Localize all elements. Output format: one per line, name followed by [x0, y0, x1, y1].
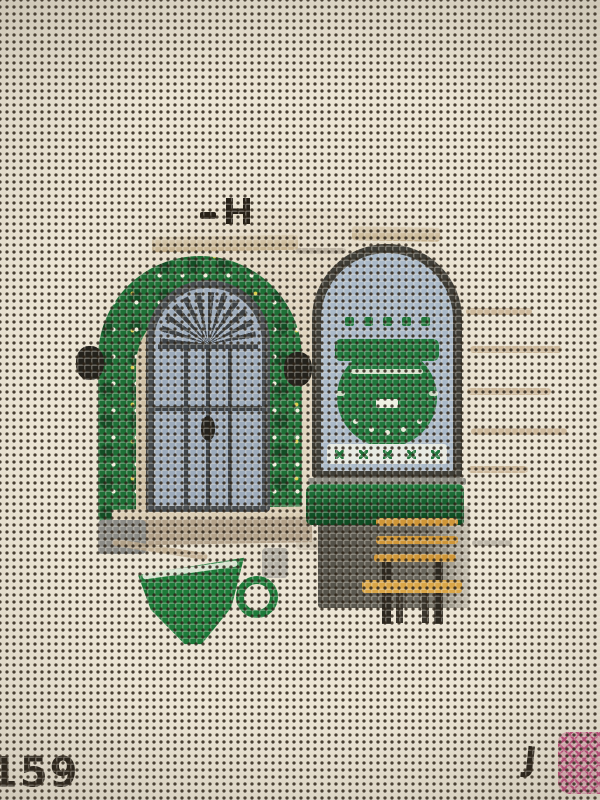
logo-center-mark — [376, 399, 398, 408]
lantern-dot-left — [76, 346, 104, 380]
bench-back-slat — [376, 536, 458, 544]
green-teacup — [138, 552, 270, 650]
window-glass — [321, 253, 453, 471]
arched-door — [146, 280, 270, 512]
needlepoint-canvas-photo: 159 J — [0, 0, 600, 800]
artist-initial-text: J — [522, 739, 539, 780]
sign-letter-mark — [421, 317, 430, 326]
x-stitch-mark — [359, 450, 368, 459]
bench-leg — [434, 562, 443, 624]
window-sign-lettering — [321, 317, 453, 327]
canvas-number-text: 159 — [0, 749, 80, 797]
x-stitch-mark — [431, 450, 440, 459]
door-fanlight — [160, 292, 256, 344]
sign-letter-mark — [383, 317, 392, 326]
x-stitch-mark — [383, 450, 392, 459]
logo-side-dash — [336, 391, 345, 396]
bird-mark — [226, 198, 250, 224]
painted-sketch-line — [472, 540, 512, 546]
door-keyhole — [201, 416, 215, 440]
logo-highlight-line — [351, 369, 423, 374]
window-x-stitch-band — [327, 444, 447, 464]
door-panel — [154, 288, 262, 506]
pink-stitched-maker-mark — [558, 732, 600, 794]
sign-letter-mark — [402, 317, 411, 326]
lintel-extension-line — [296, 248, 346, 254]
bench-leg — [382, 562, 391, 624]
x-stitch-mark — [335, 450, 344, 459]
window-lintel-bar — [352, 226, 440, 242]
logo-side-dash — [429, 391, 438, 396]
wooden-bench — [360, 512, 464, 624]
painted-sketch-line — [468, 466, 528, 473]
logo-dot — [401, 427, 406, 432]
bench-back-slat — [374, 554, 456, 562]
logo-dot — [353, 419, 358, 424]
door-mullion-right — [228, 349, 232, 506]
bench-back-slat — [376, 518, 458, 526]
logo-dot — [417, 419, 422, 424]
sign-letter-mark — [364, 317, 373, 326]
lantern-dot-right — [284, 352, 312, 386]
x-stitch-mark — [407, 450, 416, 459]
door-crossbar — [154, 406, 262, 411]
teacup-handle — [236, 576, 278, 618]
painted-sketch-line — [471, 428, 567, 435]
painted-sketch-line — [470, 346, 562, 353]
bench-seat — [362, 580, 462, 593]
bird-mark-dash — [200, 212, 216, 219]
painted-sketch-line — [466, 308, 532, 315]
cafe-logo-circle — [337, 347, 437, 447]
logo-dot — [369, 427, 374, 432]
sign-letter-mark — [345, 317, 354, 326]
logo-dot — [385, 430, 390, 435]
door-lintel-bar — [152, 235, 298, 253]
door-mullion-left — [184, 349, 188, 506]
bench-front-leg — [422, 593, 429, 623]
cafe-window — [312, 244, 462, 478]
bench-front-leg — [396, 593, 403, 623]
painted-sketch-line — [467, 388, 551, 395]
